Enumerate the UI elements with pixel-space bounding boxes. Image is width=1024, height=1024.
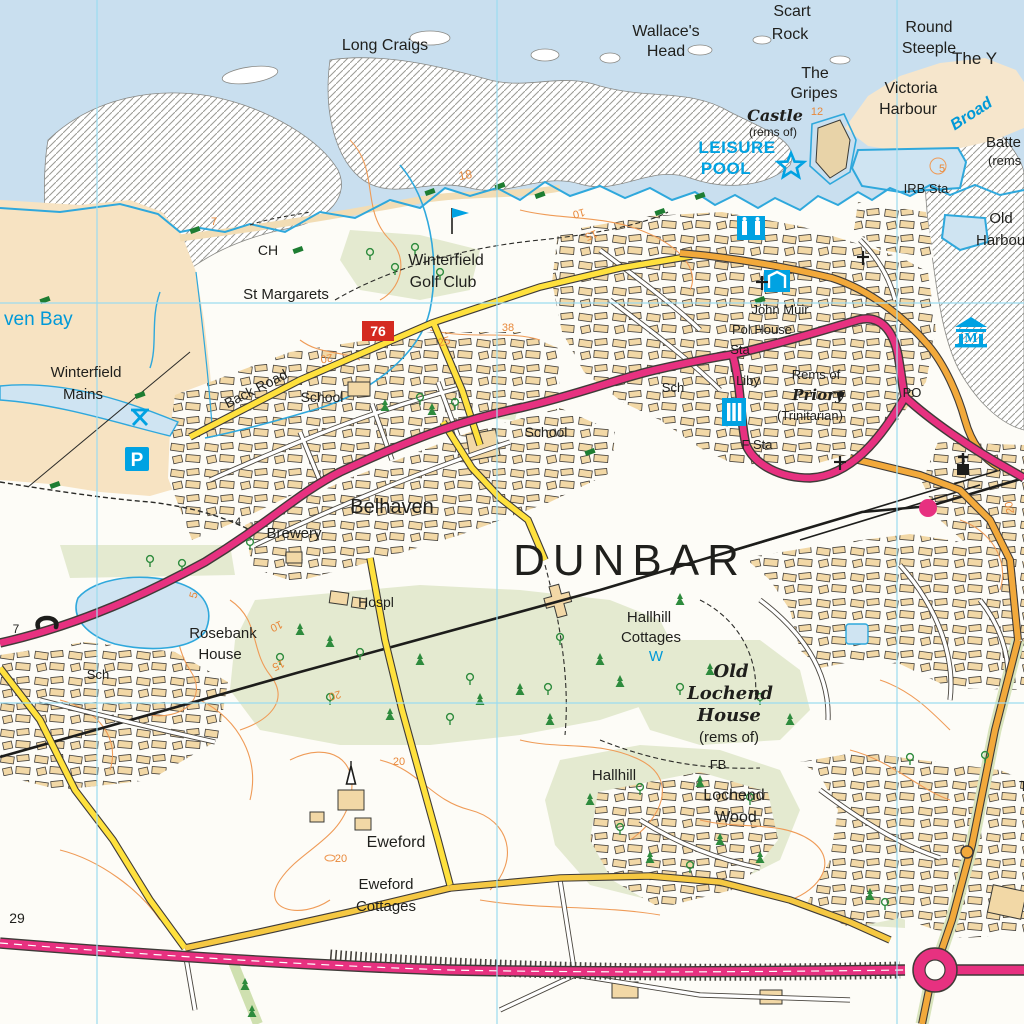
- map-label-hallhill: Hallhill: [627, 609, 671, 626]
- map-label-house: House: [198, 646, 241, 663]
- map-label-victoria: Victoria: [884, 80, 937, 97]
- map-label-hallhill: Hallhill: [592, 767, 636, 784]
- map-label-house: House: [696, 705, 761, 726]
- map-label-cottages: Cottages: [356, 898, 416, 915]
- parking-icon: [125, 447, 149, 471]
- map-label-eweford: Eweford: [358, 876, 413, 893]
- map-label-school: School: [301, 389, 344, 405]
- map-label-the-y: The Y: [952, 49, 997, 68]
- map-label-sta: Sta: [730, 342, 750, 357]
- map-label-winterfield: Winterfield: [51, 364, 122, 381]
- map-viewport[interactable]: P M: [0, 0, 1024, 1024]
- map-label-belhaven: Belhaven: [350, 496, 433, 518]
- route-number-label: 76: [370, 323, 386, 339]
- map-label-st-margarets: St Margarets: [243, 286, 329, 303]
- map-label-round: Round: [905, 19, 952, 36]
- map-label-20: 20: [393, 756, 405, 768]
- map-label-eweford: Eweford: [367, 834, 426, 851]
- map-label-mains: Mains: [63, 386, 103, 403]
- map-label-38: 38: [502, 322, 514, 334]
- map-label-liby: Liby: [736, 373, 760, 388]
- map-label-golf-club: Golf Club: [410, 274, 477, 291]
- map-label-20: 20: [335, 853, 347, 865]
- map-label-pol-house: Pol House: [732, 322, 792, 337]
- map-label-hospl: Hospl: [358, 594, 394, 610]
- map-label-steeple: Steeple: [902, 40, 956, 57]
- map-label-wallace-s: Wallace's: [632, 23, 699, 40]
- map-label-leisure: LEISURE: [698, 138, 775, 157]
- railway-station-icon: [919, 499, 937, 517]
- map-label-sch: Sch: [662, 380, 684, 395]
- map-label-20: 20: [319, 351, 333, 365]
- map-label-sch: Sch: [87, 667, 109, 682]
- map-label-rems-of: Rems of: [792, 367, 841, 382]
- map-label-head: Head: [647, 43, 685, 60]
- map-label-18: 18: [458, 167, 474, 183]
- map-label-dunbar: DUNBAR: [513, 536, 747, 585]
- map-label-irb-sta: IRB Sta: [904, 181, 950, 196]
- map-label-trinitarian: (Trinitarian): [777, 408, 843, 423]
- map-label-ch: CH: [258, 242, 278, 258]
- map-label-lochend: Lochend: [703, 787, 764, 804]
- map-label-old: Old: [989, 210, 1012, 227]
- map-label-29: 29: [9, 910, 25, 926]
- library-icon: [722, 398, 746, 426]
- map-label-castle: Castle: [747, 106, 803, 125]
- map-label-7: 7: [211, 216, 217, 228]
- map-label-5: 5: [939, 163, 945, 175]
- map-label-old: Old: [713, 661, 749, 682]
- map-label-lochend: Lochend: [686, 683, 773, 704]
- map-label-harbou: Harbou: [976, 232, 1024, 249]
- map-label-brewery: Brewery: [266, 525, 322, 542]
- map-label-po: PO: [903, 385, 922, 400]
- map-label-john-muir: John Muir: [751, 302, 809, 317]
- map-label-fb: FB: [710, 757, 727, 772]
- map-label-4: 4: [235, 516, 241, 528]
- map-label-rock: Rock: [772, 26, 809, 43]
- map-label-gripes: Gripes: [790, 85, 837, 102]
- map-label-the: The: [801, 65, 829, 82]
- map-label-12: 12: [811, 106, 823, 118]
- map-label-rosebank: Rosebank: [189, 625, 257, 642]
- map-label-batte: Batte: [986, 134, 1021, 151]
- map-label-rems: (rems: [988, 153, 1022, 168]
- map-label-scart: Scart: [773, 3, 811, 20]
- map-label-7: 7: [13, 622, 20, 636]
- map-label-f-sta: F Sta: [741, 437, 773, 452]
- map-label-school: School: [525, 424, 568, 440]
- map-label-rems-of: (rems of): [699, 729, 759, 746]
- map-label-20: 20: [1003, 500, 1017, 514]
- map-label-w: W: [649, 648, 664, 665]
- map-label-cottages: Cottages: [621, 629, 681, 646]
- map-label-ven-bay: ven Bay: [4, 309, 73, 330]
- map-label-t: T: [1019, 778, 1024, 795]
- map-label-wood: Wood: [715, 809, 757, 826]
- os-map-canvas: P M: [0, 0, 1024, 1024]
- map-label-harbour: Harbour: [879, 101, 937, 118]
- church-with-tower-icon: [957, 453, 969, 475]
- map-label-priory: Priory: [791, 386, 845, 404]
- map-label-long-craigs: Long Craigs: [342, 37, 428, 54]
- map-label-pool: POOL: [701, 159, 751, 178]
- leisure-centre-icon: [737, 216, 765, 240]
- map-label-winterfield: Winterfield: [408, 252, 484, 269]
- map-label-rems-of: (rems of): [749, 125, 797, 139]
